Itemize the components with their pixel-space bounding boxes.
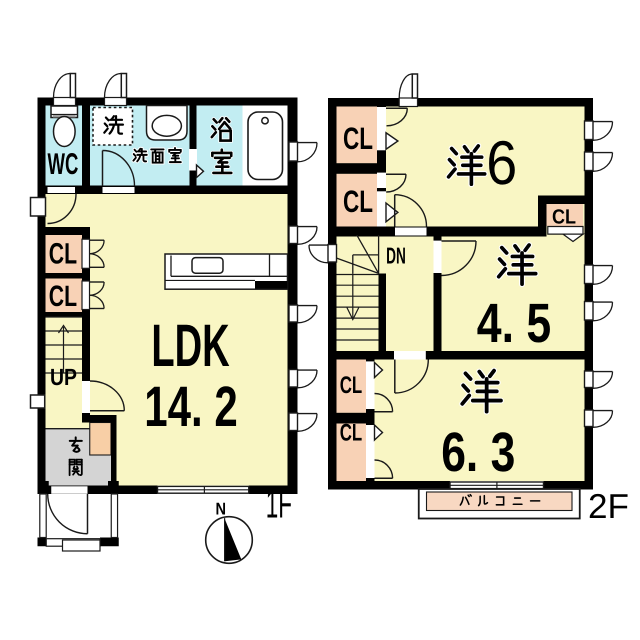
svg-text:WC: WC xyxy=(48,148,79,181)
svg-text:14. 2: 14. 2 xyxy=(144,375,238,439)
svg-text:UP: UP xyxy=(50,364,77,390)
svg-text:CL: CL xyxy=(49,238,77,271)
svg-text:1F: 1F xyxy=(266,483,292,527)
svg-text:CL: CL xyxy=(343,184,373,219)
svg-text:LDK: LDK xyxy=(151,312,229,379)
svg-text:N: N xyxy=(216,500,227,519)
svg-text:CL: CL xyxy=(340,372,363,399)
svg-text:CL: CL xyxy=(343,121,373,156)
svg-text:4. 5: 4. 5 xyxy=(477,292,551,354)
svg-text:2F: 2F xyxy=(588,488,629,526)
svg-text:CL: CL xyxy=(49,280,77,313)
svg-text:DN: DN xyxy=(386,243,406,269)
svg-text:6. 3: 6. 3 xyxy=(441,421,515,483)
svg-text:CL: CL xyxy=(340,420,363,447)
svg-text:6: 6 xyxy=(486,129,517,198)
svg-text:CL: CL xyxy=(552,206,576,229)
